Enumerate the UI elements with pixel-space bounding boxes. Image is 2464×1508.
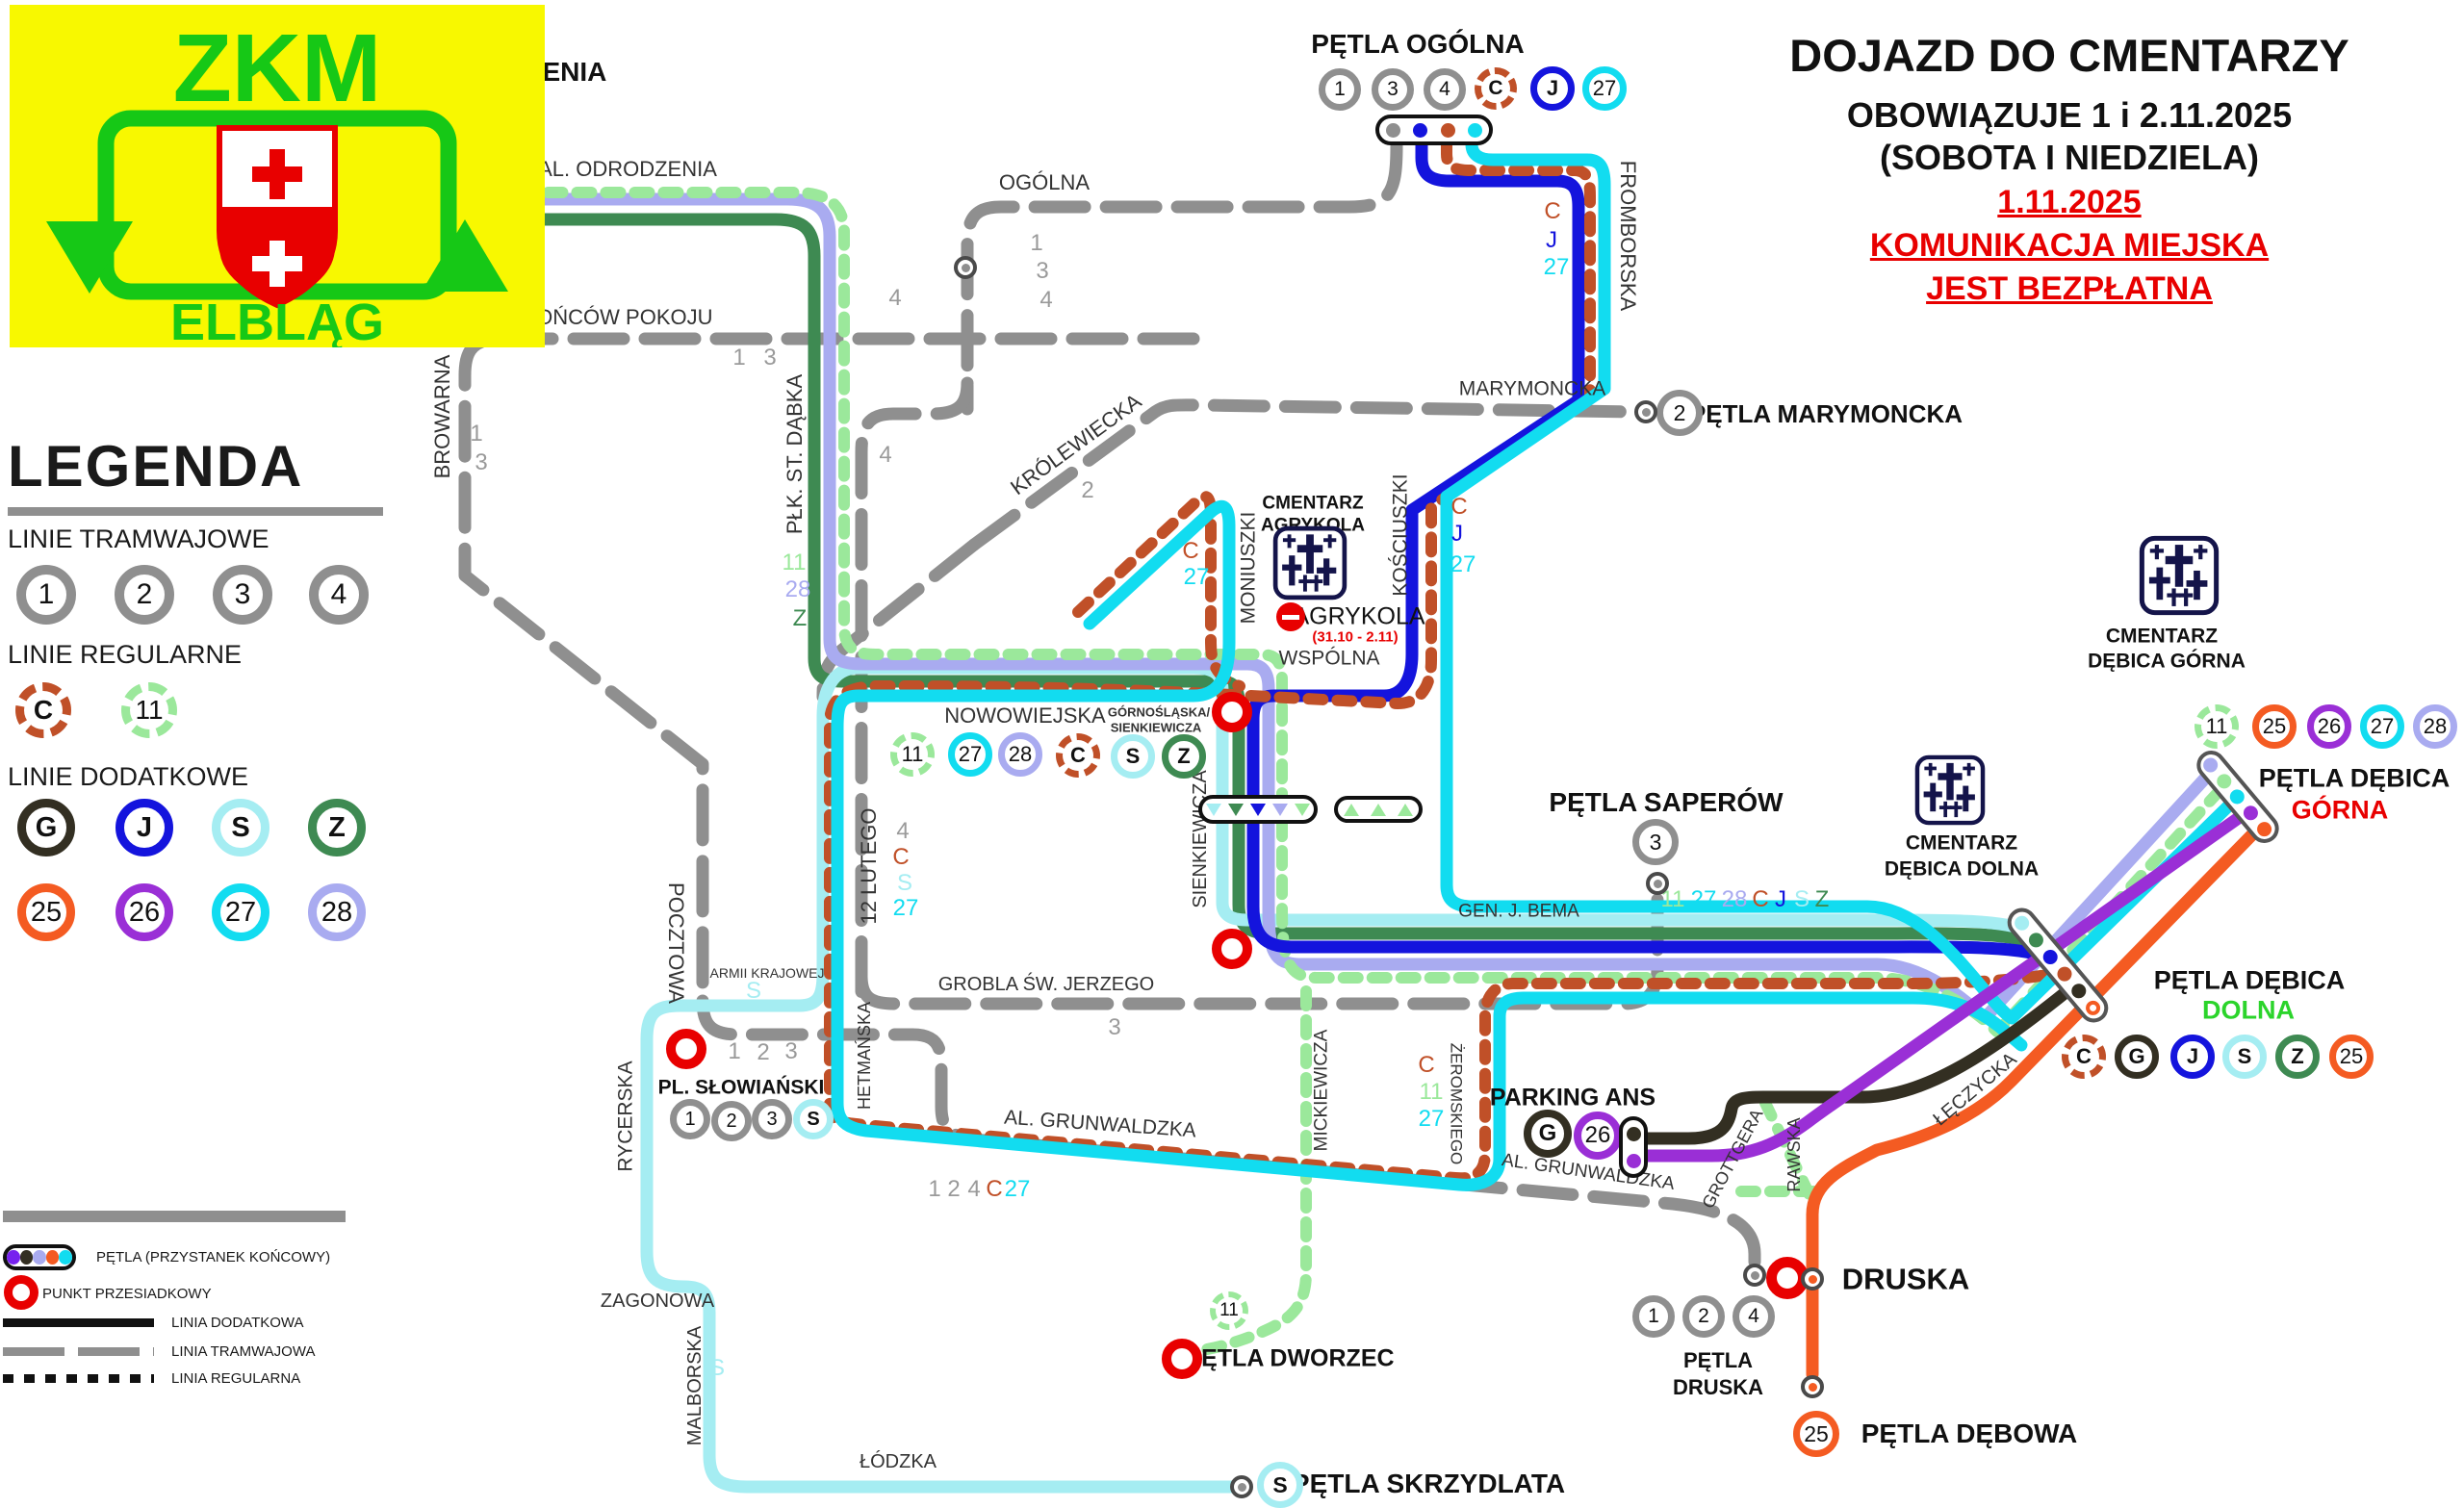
transit-map-page: RUBNO / NOWAKOWOAL. ODRODZENIAOGÓLNAOBRO… <box>0 0 2464 1508</box>
street-label: AL. ODRODZENIA <box>538 159 717 180</box>
route-marker: Z <box>793 607 808 630</box>
line-badge-label: 27 <box>959 742 982 767</box>
street-label: RAWSKA <box>1785 1117 1803 1191</box>
line-badge-4: 4 <box>1424 68 1466 111</box>
legend-punkt-label: PUNKT PRZESIADKOWY <box>42 1286 212 1302</box>
line-badge-11: 11 <box>890 732 935 777</box>
line-badge-25: 25 <box>17 883 75 941</box>
line-badge-4: 4 <box>309 565 369 625</box>
petla-pill <box>1619 1116 1648 1178</box>
line-badge-label: J <box>1547 76 1558 101</box>
poi-label: DĘBICA GÓRNA <box>2088 652 2246 672</box>
line-badge-label: C <box>2076 1044 2092 1069</box>
street-label: HETMAŃSKA <box>856 1002 873 1110</box>
street-label: 12 LUTEGO <box>859 807 880 924</box>
line-badge-S: S <box>793 1099 834 1139</box>
line-badge-label: S <box>1126 744 1141 769</box>
line-badge-label: 28 <box>1009 742 1032 767</box>
line-badge-11: 11 <box>2194 704 2239 749</box>
terminus-dot <box>1413 123 1427 138</box>
line-badge-J: J <box>1530 66 1575 111</box>
petla-pill <box>1375 115 1493 145</box>
line-badge-label: Z <box>2291 1044 2303 1069</box>
terminus-dot <box>7 1250 20 1265</box>
route-marker: S <box>746 980 761 1003</box>
interchange-ring <box>666 1029 706 1069</box>
legend-rule <box>8 507 383 516</box>
route-marker: 3 <box>763 346 776 370</box>
interchange-ring <box>1212 692 1252 732</box>
title-free-line2: JEST BEZPŁATNA <box>1675 270 2464 308</box>
route-marker: 2 <box>947 1178 960 1201</box>
street-label: SIENKIEWICZA <box>1191 770 1210 907</box>
line-badge-S: S <box>1257 1462 1303 1508</box>
line-badge-label: 26 <box>2318 714 2341 739</box>
poi-label: PL. SŁOWIAŃSKI <box>658 1078 825 1098</box>
line-badge-label: C <box>1488 77 1502 100</box>
poi-label: PĘTLA OGÓLNA <box>1311 31 1524 58</box>
terminus-dot <box>33 1250 46 1265</box>
route-marker: Z <box>1815 888 1830 911</box>
poi-label: PĘTLA DĘBICA <box>2154 968 2346 994</box>
map-title-block: DOJAZD DO CMENTARZY OBOWIĄZUJE 1 i 2.11.… <box>1675 29 2464 308</box>
terminus-dot <box>2254 819 2274 839</box>
line-badge-label: G <box>1539 1120 1557 1147</box>
legend-petla-label: PĘTLA (PRZYSTANEK KOŃCOWY) <box>96 1249 330 1265</box>
route-marker: 27 <box>1005 1178 1031 1201</box>
poi-label: CMENTARZ <box>2106 626 2218 647</box>
legend-linia-tramwajowa: LINIA TRAMWAJOWA <box>171 1343 315 1360</box>
line-badge-S: S <box>2222 1035 2267 1079</box>
poi-label: CMENTARZ <box>1906 833 2017 854</box>
route-marker: 27 <box>893 897 919 920</box>
line-badge-1: 1 <box>670 1099 710 1139</box>
street-label: ŻEROMSKIEGO <box>1449 1043 1465 1165</box>
line-badge-25: 25 <box>1793 1411 1839 1457</box>
terminus-dot <box>46 1250 60 1265</box>
route-marker: 28 <box>785 578 811 601</box>
street-label: WSPÓLNA <box>1278 649 1379 669</box>
line-badge-28: 28 <box>998 732 1042 777</box>
line-badge-label: G <box>36 812 58 844</box>
line-badge-Z: Z <box>2275 1035 2320 1079</box>
street-label: MICKIEWICZA <box>1313 1030 1331 1152</box>
route-marker: C <box>1544 200 1560 223</box>
terminal-circle <box>1743 1264 1766 1287</box>
line-badge-label: Z <box>1177 744 1190 769</box>
poi-label: PARKING ANS <box>1490 1086 1655 1111</box>
petla-pill <box>1334 796 1423 823</box>
line-badge-27: 27 <box>1582 66 1627 111</box>
line-badge-label: 1 <box>684 1109 695 1131</box>
line-badge-label: 27 <box>225 897 256 929</box>
route-marker: 1 <box>732 346 745 370</box>
street-label: ŁÓDZKA <box>860 1452 937 1471</box>
line-badge-28: 28 <box>308 883 366 941</box>
route-marker: 4 <box>888 287 901 310</box>
line-badge-C: C <box>1475 67 1517 110</box>
line-badge-25: 25 <box>2252 704 2297 749</box>
terminal-dot <box>1751 1271 1759 1280</box>
terminus-dot <box>2055 963 2075 984</box>
line-badge-J: J <box>115 799 173 856</box>
route-marker: 27 <box>1184 566 1210 589</box>
route-marker: C <box>892 846 909 869</box>
route-marker: C <box>1752 888 1768 911</box>
legend-sample-regularna <box>3 1374 154 1383</box>
route-marker: J <box>1775 888 1786 911</box>
terminal-circle <box>1646 872 1669 895</box>
line-badge-label: 11 <box>1219 1300 1239 1321</box>
poi-label: AGRYKOLA <box>1293 605 1424 629</box>
route-marker: 1 <box>928 1178 940 1201</box>
line-badge-1: 1 <box>1632 1295 1675 1338</box>
line-badge-label: 27 <box>1593 76 1616 101</box>
poi-label: DOLNA <box>2202 998 2295 1024</box>
line-badge-label: G <box>2128 1044 2144 1069</box>
terminus-dot <box>2069 981 2090 1001</box>
line-badge-label: 1 <box>1334 78 1346 101</box>
legend-extra-heading: LINIE DODATKOWE <box>8 762 248 792</box>
line-badge-label: 11 <box>135 695 163 726</box>
legend-tram-heading: LINIE TRAMWAJOWE <box>8 524 269 554</box>
terminus-dot <box>59 1250 72 1265</box>
route-marker: 1 <box>1030 232 1042 255</box>
route-marker: C <box>986 1178 1002 1201</box>
line-badge-S: S <box>212 799 269 856</box>
route-marker: 11 <box>783 551 807 575</box>
street-label: PŁK. ST. DĄBKA <box>784 374 806 534</box>
line-badge-label: 2 <box>726 1111 736 1133</box>
no-entry-bar <box>1282 615 1299 620</box>
legend-heading: LEGENDA <box>8 433 412 499</box>
route-marker: 27 <box>1544 256 1570 279</box>
terminus-dot <box>2026 930 2046 950</box>
route-marker: 3 <box>475 451 487 474</box>
line-badge-3: 3 <box>752 1099 792 1139</box>
street-label: KRÓLEWIECKA <box>1007 391 1144 499</box>
line-badge-11: 11 <box>121 682 177 738</box>
route-marker: 27 <box>1450 553 1476 576</box>
route-marker: 1 <box>728 1040 740 1063</box>
terminal-dot <box>1642 408 1651 417</box>
interchange-ring <box>1162 1339 1202 1379</box>
stop-triangle <box>1228 804 1244 816</box>
line-badge-26: 26 <box>1574 1112 1622 1160</box>
line-badge-label: J <box>2187 1044 2198 1069</box>
legend-linia-dodatkowa: LINIA DODATKOWA <box>171 1315 304 1331</box>
route-marker: 1 <box>470 422 482 446</box>
cemetery-icon <box>2139 535 2220 616</box>
terminal-circle <box>1801 1375 1824 1398</box>
line-badge-label: C <box>1070 743 1086 768</box>
zkm-logo-graphic: ZKM ELBLĄG <box>10 5 545 347</box>
line-badge-label: J <box>137 812 152 844</box>
title-free-line1: KOMUNIKACJA MIEJSKA <box>1675 227 2464 265</box>
stop-triangle <box>1272 804 1288 816</box>
legend-sample-dodatkowa <box>3 1318 154 1327</box>
poi-label: (31.10 - 2.11) <box>1312 630 1398 645</box>
terminus-dot <box>1386 123 1400 138</box>
line-badge-S: S <box>1111 734 1155 779</box>
line-badge-4: 4 <box>1732 1295 1775 1338</box>
poi-label: GÓRNA <box>2292 798 2389 824</box>
route-marker: 3 <box>1036 260 1048 283</box>
line-badge-J: J <box>2170 1035 2215 1079</box>
line-badge-C: C <box>2062 1035 2106 1079</box>
line-badge-label: 3 <box>766 1109 777 1131</box>
line-badge-label: S <box>231 812 249 844</box>
poi-label: DRUSKA <box>1842 1265 1970 1294</box>
terminus-dot <box>1441 123 1455 138</box>
terminus-dot <box>2241 803 2261 823</box>
cemetery-icon <box>1914 754 1986 826</box>
route-marker: 11 <box>1420 1081 1444 1104</box>
route-marker: J <box>1546 229 1557 252</box>
line-badge-label: 28 <box>321 897 352 929</box>
terminus-dot <box>2012 912 2032 933</box>
zkm-logo: ZKM ELBLĄG <box>10 5 545 347</box>
line-badge-26: 26 <box>115 883 173 941</box>
terminus-dot <box>1627 1127 1641 1141</box>
poi-label: PĘTLA MARYMONCKA <box>1689 401 1963 426</box>
route-marker: 27 <box>1691 888 1717 911</box>
route-marker: 4 <box>896 820 909 843</box>
route-marker: J <box>1451 523 1463 546</box>
line-badge-label: 2 <box>1674 400 1686 426</box>
street-label: OGÓLNA <box>999 172 1090 193</box>
street-label: KOŚCIUSZKI <box>1391 473 1411 596</box>
line-badge-label: 25 <box>2263 714 2286 739</box>
terminus-dot <box>20 1250 34 1265</box>
line-badge-25: 25 <box>2329 1035 2374 1079</box>
street-label: MONIUSZKI <box>1239 512 1259 625</box>
poi-label: CMENTARZ <box>1262 495 1363 513</box>
legend-symbols <box>3 1211 346 1222</box>
line-badge-Z: Z <box>308 799 366 856</box>
line-badge-label: 2 <box>1698 1305 1709 1328</box>
terminus-dot <box>1468 123 1482 138</box>
line-badge-label: 1 <box>1648 1305 1659 1328</box>
street-label: AL. GRUNWALDZKA <box>1004 1108 1197 1141</box>
route-marker: 3 <box>784 1040 797 1063</box>
terminus-dot <box>2040 947 2061 967</box>
street-label: NOWOWIEJSKA <box>944 705 1105 727</box>
title-line2: OBOWIĄZUJE 1 i 2.11.2025 <box>1675 95 2464 136</box>
line-badge-label: 2 <box>137 578 153 611</box>
line-badge-label: Z <box>328 812 346 844</box>
line-badge-label: 26 <box>1585 1122 1611 1149</box>
street-label: MARYMONCKA <box>1459 379 1605 399</box>
stop-triangle <box>1295 804 1310 816</box>
terminal-dot <box>1809 1275 1817 1284</box>
line-badge-26: 26 <box>2307 704 2351 749</box>
poi-label: PĘTLA <box>1683 1350 1753 1371</box>
legend-divider <box>3 1211 346 1222</box>
route-marker: 4 <box>967 1178 980 1201</box>
logo-arrow-up-icon <box>422 219 508 292</box>
line-badge-28: 28 <box>2413 704 2457 749</box>
line-badge-G: G <box>2115 1035 2159 1079</box>
stop-triangle <box>1398 804 1413 816</box>
street-label: GÓRNOŚLĄSKA/ <box>1108 706 1210 719</box>
line-badge-label: 3 <box>1650 830 1662 856</box>
line-badge-label: 4 <box>331 578 347 611</box>
terminal-dot <box>1809 1383 1817 1392</box>
line-badge-2: 2 <box>711 1101 752 1141</box>
poi-label: PĘTLA SAPERÓW <box>1549 789 1783 816</box>
line-badge-label: 4 <box>1439 78 1450 101</box>
line-badge-3: 3 <box>1632 819 1679 865</box>
poi-label: PĘTLA DWORZEC <box>1185 1347 1394 1371</box>
terminal-circle <box>1801 1267 1824 1291</box>
title-line3: (SOBOTA I NIEDZIELA) <box>1675 138 2464 178</box>
line-badge-G: G <box>1524 1110 1572 1158</box>
line-badge-1: 1 <box>1319 68 1361 111</box>
line-badge-label: 25 <box>2340 1044 2363 1069</box>
legend: LEGENDA <box>8 433 412 516</box>
street-label: GROBLA ŚW. JERZEGO <box>938 975 1155 994</box>
route-marker: 4 <box>1039 289 1052 312</box>
line-badge-G: G <box>17 799 75 856</box>
line-badge-C: C <box>1056 733 1100 778</box>
petla-pill <box>3 1244 76 1270</box>
stop-triangle <box>1250 804 1266 816</box>
route-marker: 2 <box>757 1041 769 1064</box>
line-badge-27: 27 <box>2360 704 2404 749</box>
route-marker: 28 <box>1722 888 1748 911</box>
petla-pill <box>1198 795 1318 824</box>
petla-pill <box>2002 902 2115 1028</box>
poi-label: DĘBICA DOLNA <box>1885 859 2039 880</box>
street-label: MALBORSKA <box>685 1326 705 1445</box>
terminal-dot <box>1654 880 1662 888</box>
line-badge-label: 25 <box>31 897 62 929</box>
street-label: GROTTGERA <box>1699 1106 1765 1211</box>
line-badge-label: 4 <box>1748 1305 1759 1328</box>
line-badge-label: 11 <box>902 742 924 767</box>
terminal-circle <box>954 256 977 279</box>
terminus-dot <box>1627 1154 1641 1168</box>
route-marker: S <box>709 1357 725 1380</box>
line-badge-label: 26 <box>129 897 160 929</box>
terminus-dot <box>2201 754 2221 775</box>
line-badge-label: 3 <box>1387 78 1399 101</box>
line-badge-2: 2 <box>1682 1295 1725 1338</box>
route-marker: C <box>1182 540 1198 563</box>
through-stop-dot <box>2083 997 2103 1017</box>
route-marker: C <box>1418 1054 1434 1077</box>
route-marker: 3 <box>1108 1016 1120 1039</box>
line-badge-label: S <box>1272 1472 1287 1498</box>
terminal-dot <box>962 264 970 272</box>
line-badge-2: 2 <box>115 565 174 625</box>
street-label: GEN. J. BEMA <box>1458 903 1579 921</box>
cemetery-icon <box>1272 525 1347 601</box>
line-badge-label: C <box>34 695 53 726</box>
street-label: FROMBORSKA <box>1617 161 1638 311</box>
line-badge-2: 2 <box>1656 390 1703 436</box>
terminal-dot <box>1238 1483 1246 1492</box>
terminus-dot <box>2227 786 2247 806</box>
title-date: 1.11.2025 <box>1675 184 2464 221</box>
legend-linia-regularna: LINIA REGULARNA <box>171 1370 300 1387</box>
street-label: ŁĘCZYCKA <box>1930 1049 2020 1129</box>
line-badge-label: 1 <box>38 578 55 611</box>
route-marker: S <box>897 872 912 895</box>
stop-triangle <box>1371 804 1386 816</box>
line-badge-label: 27 <box>2371 714 2394 739</box>
poi-label: PĘTLA DĘBICA <box>2259 766 2451 792</box>
line-badge-3: 3 <box>213 565 272 625</box>
route-marker: C <box>1450 496 1467 519</box>
title-line1: DOJAZD DO CMENTARZY <box>1675 29 2464 82</box>
no-entry-icon <box>1276 602 1305 631</box>
poi-label: PĘTLA DĘBOWA <box>1861 1420 2078 1447</box>
line-badge-3: 3 <box>1372 68 1414 111</box>
line-badge-C: C <box>15 682 71 738</box>
petla-pill <box>2191 745 2285 849</box>
poi-label: DRUSKA <box>1673 1377 1763 1398</box>
line-badge-27: 27 <box>948 732 992 777</box>
route-marker: S <box>1794 888 1809 911</box>
route-marker: 4 <box>879 444 891 467</box>
street-label: BROWARNA <box>432 355 453 479</box>
logo-city-text: ELBLĄG <box>170 294 384 347</box>
legend-regular-heading: LINIE REGULARNE <box>8 640 242 670</box>
line-badge-27: 27 <box>212 883 269 941</box>
line-badge-label: 25 <box>1804 1421 1829 1447</box>
line-badge-label: 11 <box>2206 714 2228 739</box>
poi-label: PĘTLA SKRZYDLATA <box>1292 1470 1565 1497</box>
terminal-circle <box>1634 400 1657 423</box>
interchange-ring <box>1212 929 1252 969</box>
street-label: SIENKIEWICZA <box>1111 722 1202 734</box>
line-badge-label: S <box>807 1109 819 1131</box>
route-marker: 2 <box>1081 479 1093 502</box>
street-label: POCZTOWA <box>665 882 686 1004</box>
stop-triangle <box>1344 804 1359 816</box>
terminus-dot <box>2215 771 2235 791</box>
street-label: RYCERSKA <box>616 1061 636 1171</box>
line-badge-label: 3 <box>235 578 251 611</box>
interchange-ring <box>4 1275 38 1310</box>
line-badge-11: 11 <box>1210 1291 1248 1330</box>
line-badge-Z: Z <box>1162 734 1206 779</box>
route-marker: 27 <box>1419 1108 1445 1131</box>
line-badge-1: 1 <box>16 565 76 625</box>
line-badge-label: 28 <box>2424 714 2447 739</box>
stop-triangle <box>1206 804 1221 816</box>
line-badge-label: S <box>2238 1044 2252 1069</box>
logo-org-text: ZKM <box>173 14 382 122</box>
street-label: ZAGONOWA <box>601 1291 714 1311</box>
terminal-circle <box>1230 1475 1253 1498</box>
street-label: ARMII KRAJOWEJ <box>709 966 824 980</box>
legend-sample-tramwajowa <box>3 1347 154 1356</box>
